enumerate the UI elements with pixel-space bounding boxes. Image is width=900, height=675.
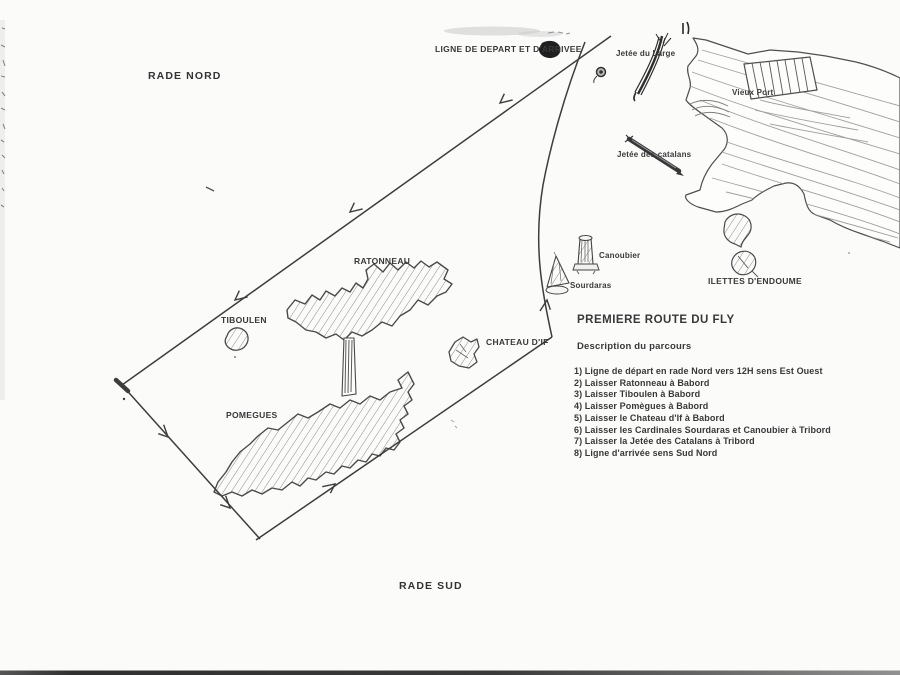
mainland (686, 38, 900, 248)
course-step: 4) Laisser Pomègues à Babord (574, 401, 884, 413)
jetee-du-large-drawing (634, 33, 671, 101)
ratonneau-shape (287, 261, 452, 340)
label-canoubier: Canoubier (599, 251, 640, 260)
label-rade-sud: RADE SUD (399, 580, 463, 592)
scan-dot (848, 252, 850, 254)
label-tiboulen: TIBOULEN (221, 315, 267, 325)
start-buoy (594, 68, 606, 84)
scan-specks (451, 420, 457, 428)
scan-smudge-2 (518, 31, 562, 37)
course-step: 8) Ligne d'arrivée sens Sud Nord (574, 448, 884, 460)
course-description: PREMIERE ROUTE DU FLY Description du par… (574, 314, 884, 460)
course-step: 5) Laisser le Chateau d'If à Babord (574, 413, 884, 425)
label-start-line: LIGNE DE DEPART ET D'ARRIVEE (435, 44, 582, 54)
island-chateau-if (449, 337, 479, 368)
island-pomegues (214, 372, 414, 496)
label-jetee-des-catalans: Jetée des catalans (617, 150, 692, 159)
course-title: PREMIERE ROUTE DU FLY (577, 314, 884, 326)
scan-bottom-bar (0, 671, 900, 675)
course-step: 2) Laisser Ratonneau à Babord (574, 378, 884, 390)
island-tiboulen (225, 328, 248, 358)
sourdaras-mark-drawing (546, 252, 569, 294)
label-rade-nord: RADE NORD (148, 70, 222, 82)
label-ratonneau: RATONNEAU (354, 256, 410, 266)
label-vieux-port: Vieux Port (732, 88, 774, 97)
scan-dark-mark (683, 22, 689, 34)
west-mark-dot (123, 398, 125, 400)
label-chateau-if: CHATEAU D'IF (486, 337, 549, 347)
canoubier-mark-drawing (573, 236, 599, 275)
course-step: 7) Laisser la Jetée des Catalans à Tribo… (574, 436, 884, 448)
course-step: 6) Laisser les Cardinales Sourdaras et C… (574, 425, 884, 437)
course-subtitle: Description du parcours (577, 341, 884, 352)
frioul-neck (342, 338, 356, 396)
island-ratonneau (287, 261, 452, 340)
course-step: 3) Laisser Tiboulen à Babord (574, 389, 884, 401)
label-jetee-du-large: Jetée du Large (616, 49, 676, 58)
pomegues-shape (214, 372, 414, 496)
course-step: 1) Ligne de départ en rade Nord vers 12H… (574, 366, 884, 378)
label-pomegues: POMEGUES (226, 410, 278, 420)
ilettes-endoume-islets (724, 214, 758, 277)
label-ilettes-endoume: ILETTES D'ENDOUME (708, 276, 802, 286)
scan-dash (206, 187, 214, 191)
scanned-race-map: RADE NORD RADE SUD LIGNE DE DEPART ET D'… (0, 0, 900, 675)
label-sourdaras: Sourdaras (570, 281, 612, 290)
